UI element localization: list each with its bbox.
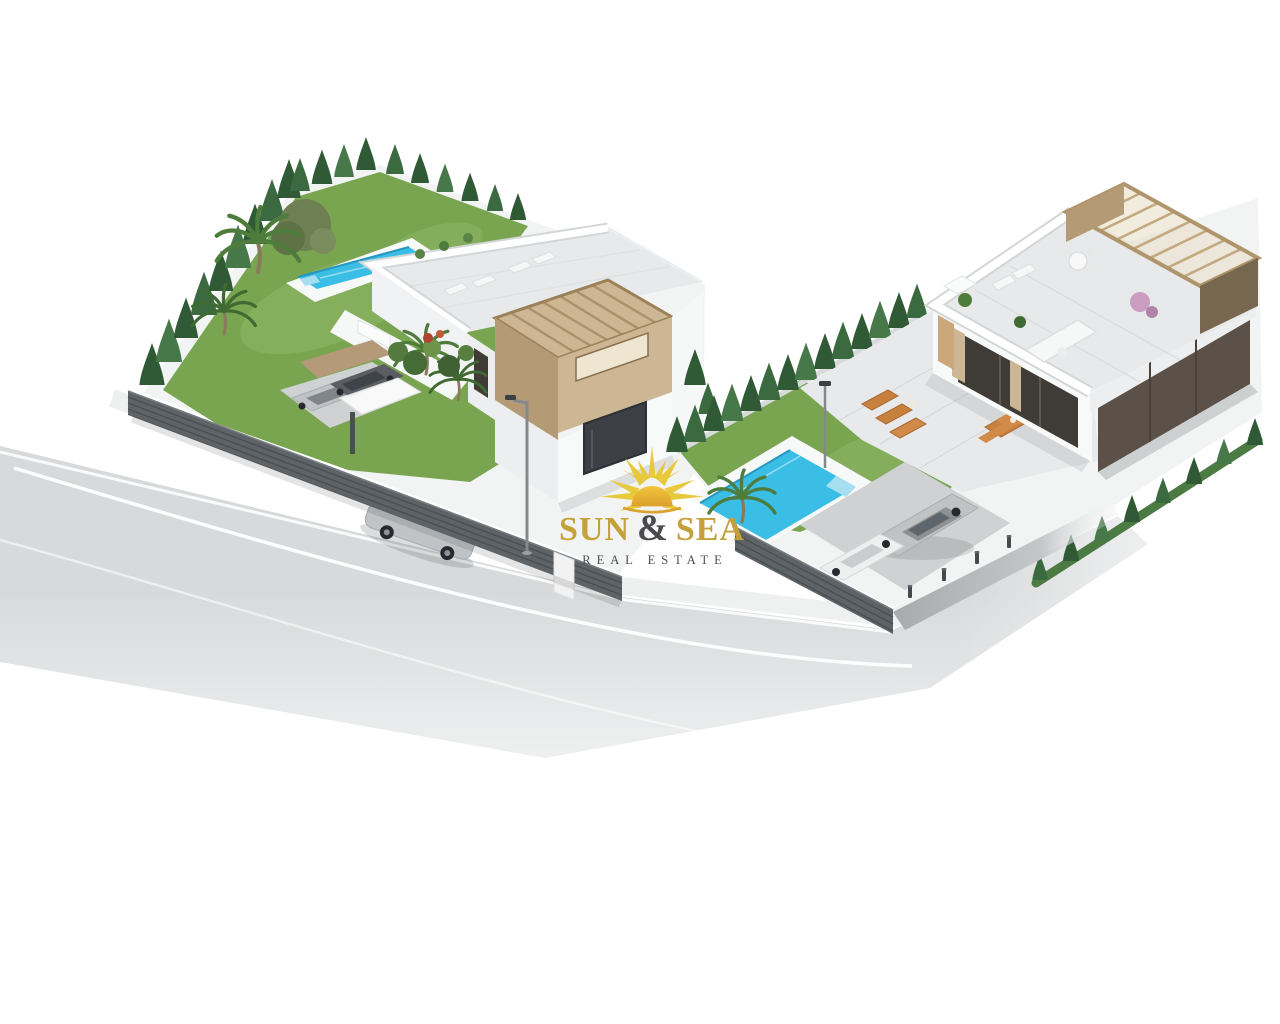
bollard	[942, 568, 947, 581]
potted-plant	[415, 249, 425, 259]
bollard	[1007, 535, 1012, 548]
cypress-tree	[888, 292, 910, 328]
gate-post	[350, 412, 355, 454]
bollard	[908, 585, 913, 598]
flowering-shrub	[436, 330, 444, 338]
chair	[1063, 249, 1069, 255]
cypress-tree	[334, 144, 354, 177]
chair	[1087, 268, 1093, 274]
cypress-tree	[721, 384, 744, 422]
car-wheel	[832, 568, 840, 576]
brand-wordmark: SUN&SEA	[552, 510, 752, 547]
brand-ampersand: &	[630, 508, 676, 549]
brand-tagline: REAL ESTATE	[552, 553, 752, 568]
shrub	[438, 355, 460, 377]
shrub	[458, 345, 474, 361]
chair	[1087, 249, 1093, 255]
sun-ray	[600, 492, 638, 500]
cypress-tree	[312, 150, 333, 185]
cypress-tree	[356, 137, 376, 170]
potted-plant	[439, 241, 449, 251]
sun-rays-icon	[585, 438, 719, 514]
brand-word-sea: SEA	[676, 511, 745, 548]
cypress-tree	[436, 164, 453, 193]
car-wheel	[337, 389, 344, 396]
coffee-table	[1057, 347, 1067, 357]
flowering-shrub	[423, 333, 433, 343]
sun-ray	[648, 446, 655, 478]
potted-plant	[1014, 316, 1026, 328]
lamp-base	[522, 551, 532, 555]
cypress-tree	[777, 354, 799, 390]
render-canvas: SUN&SEA REAL ESTATE	[0, 0, 1280, 1024]
brand-word-sun: SUN	[559, 511, 630, 548]
olive-canopy	[310, 228, 336, 254]
cypress-tree	[851, 313, 873, 349]
car-wheel	[952, 508, 961, 517]
car-wheel	[882, 540, 890, 548]
wood-slat-wall	[938, 315, 954, 370]
cypress-tree	[487, 184, 503, 211]
potted-plant	[463, 233, 473, 243]
shrub	[403, 351, 427, 375]
cypress-tree	[510, 193, 526, 220]
cypress-tree	[758, 363, 781, 401]
side-table	[464, 294, 469, 299]
cypress-tree	[461, 173, 478, 202]
lamp-head	[819, 381, 831, 386]
bollard	[975, 551, 980, 564]
cypress-tree	[740, 375, 762, 411]
side-table	[528, 272, 533, 277]
cypress-tree	[907, 284, 928, 319]
cypress-tree	[795, 343, 818, 381]
round-dining-table	[1069, 252, 1087, 270]
side-table	[908, 400, 916, 408]
lamp-head	[505, 395, 516, 400]
potted-plant	[958, 293, 972, 307]
cypress-tree	[832, 322, 855, 360]
bougainvillea	[1146, 306, 1158, 318]
cypress-tree	[411, 153, 429, 183]
chair	[1061, 267, 1067, 273]
cypress-tree	[869, 301, 892, 339]
car-wheel	[299, 403, 306, 410]
porch-pillar	[1010, 360, 1021, 412]
sun-ray	[666, 492, 704, 500]
cypress-tree	[386, 144, 404, 174]
cypress-tree	[814, 333, 836, 369]
sun-and-sea-watermark: SUN&SEA REAL ESTATE	[552, 438, 752, 568]
